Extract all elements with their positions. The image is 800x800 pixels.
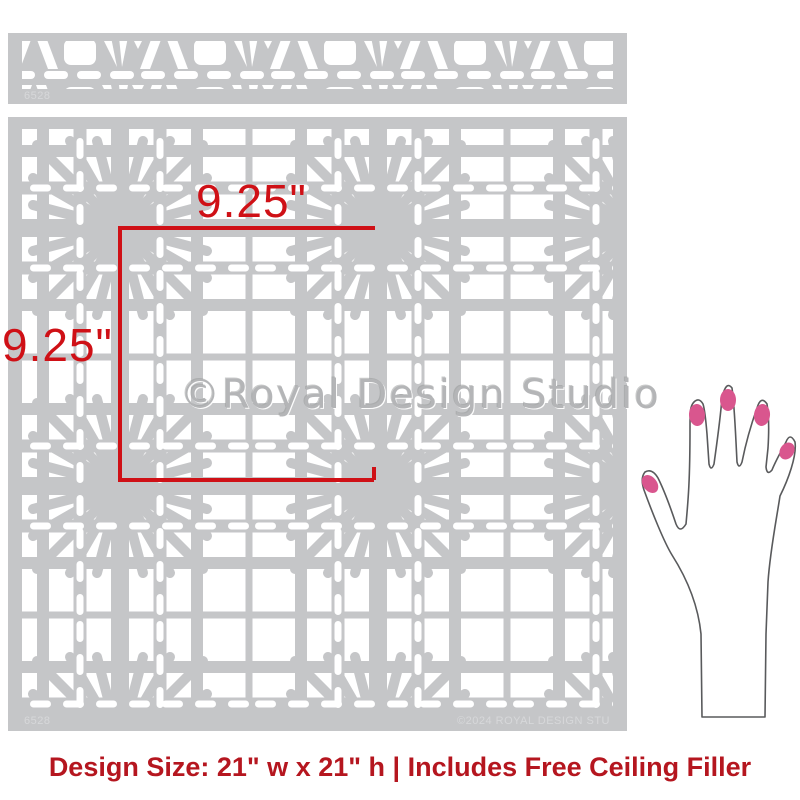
copyright-stamp: ©2024 ROYAL DESIGN STU (457, 715, 610, 727)
dimension-width-label: 9.25" (196, 174, 307, 228)
ceiling-filler-stencil: 6528 (8, 33, 627, 104)
hand-outline (642, 386, 795, 717)
hand-scale-icon (628, 372, 800, 720)
dimension-height-label: 9.25" (2, 318, 113, 372)
product-image: 6528 (0, 0, 800, 800)
strip-pattern (22, 41, 613, 89)
main-product-code: 6528 (24, 715, 50, 727)
main-pattern (22, 129, 613, 709)
strip-product-code: 6528 (24, 90, 50, 102)
watermark-text: ©Royal Design Studio (180, 372, 600, 418)
design-size-caption: Design Size: 21" w x 21" h | Includes Fr… (0, 752, 800, 783)
main-stencil: 6528 ©2024 ROYAL DESIGN STU (8, 117, 627, 731)
